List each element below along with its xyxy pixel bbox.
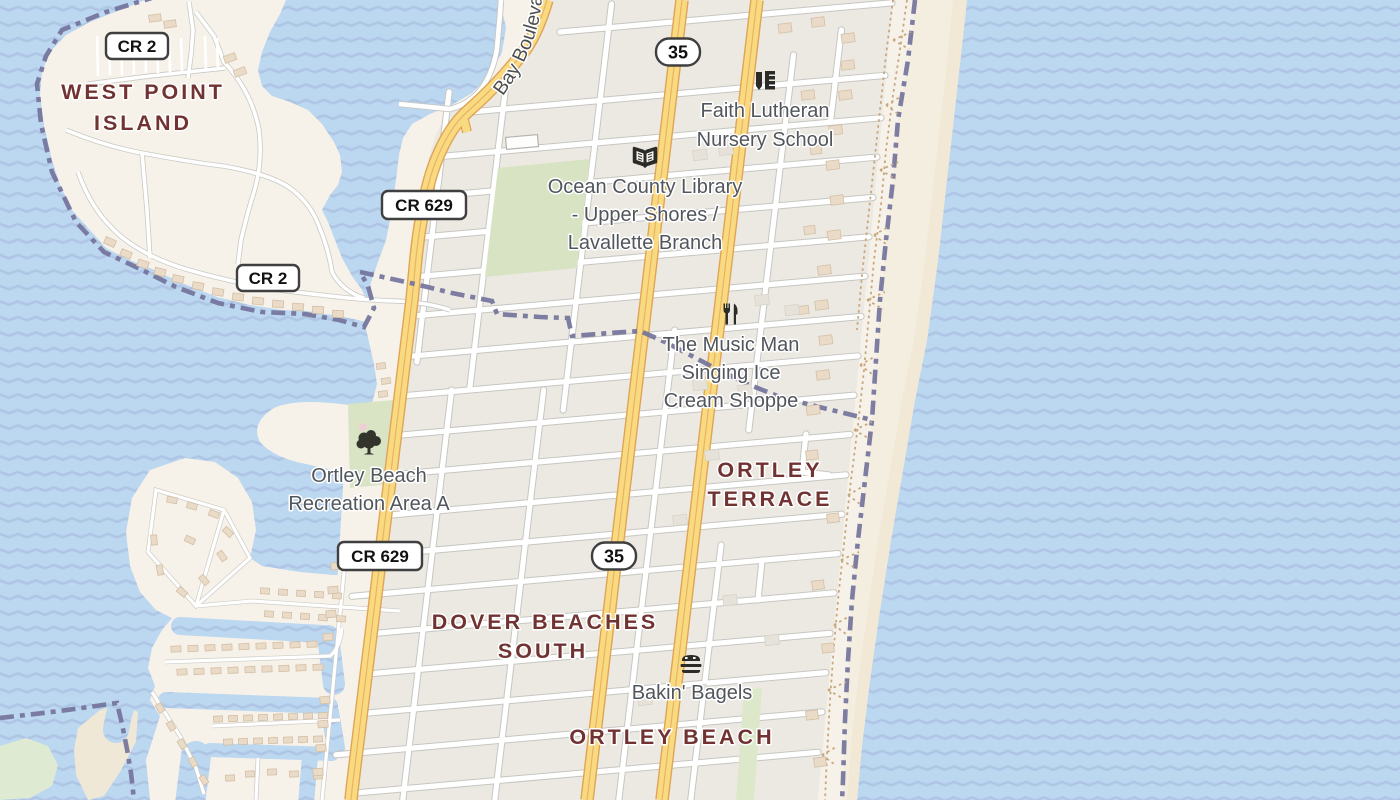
svg-text:ORTLEY BEACH: ORTLEY BEACH — [569, 725, 774, 749]
svg-text:TERRACE: TERRACE — [708, 487, 833, 511]
svg-text:Ortley Beach: Ortley Beach — [311, 465, 427, 487]
svg-text:35: 35 — [604, 546, 624, 566]
svg-text:Ocean County Library: Ocean County Library — [548, 176, 743, 198]
svg-text:- Upper Shores /: - Upper Shores / — [572, 204, 719, 226]
svg-text:35: 35 — [668, 42, 688, 62]
svg-text:ISLAND: ISLAND — [94, 111, 192, 135]
svg-text:The Music Man: The Music Man — [663, 334, 800, 356]
svg-text:CR 629: CR 629 — [351, 547, 409, 566]
svg-text:Faith Lutheran: Faith Lutheran — [701, 100, 830, 122]
svg-text:WEST POINT: WEST POINT — [61, 80, 225, 104]
svg-text:Nursery School: Nursery School — [697, 129, 834, 151]
svg-text:Cream Shoppe: Cream Shoppe — [664, 390, 799, 412]
svg-text:Singing Ice: Singing Ice — [682, 362, 781, 384]
svg-text:CR 2: CR 2 — [118, 37, 157, 56]
svg-text:Recreation Area A: Recreation Area A — [288, 493, 450, 515]
svg-text:CR 2: CR 2 — [249, 269, 288, 288]
svg-text:Lavallette Branch: Lavallette Branch — [568, 232, 723, 254]
svg-text:ORTLEY: ORTLEY — [717, 458, 822, 482]
svg-text:Bakin' Bagels: Bakin' Bagels — [632, 682, 753, 704]
svg-text:DOVER BEACHES: DOVER BEACHES — [432, 610, 659, 634]
svg-text:SOUTH: SOUTH — [498, 639, 588, 663]
svg-text:CR 629: CR 629 — [395, 196, 453, 215]
